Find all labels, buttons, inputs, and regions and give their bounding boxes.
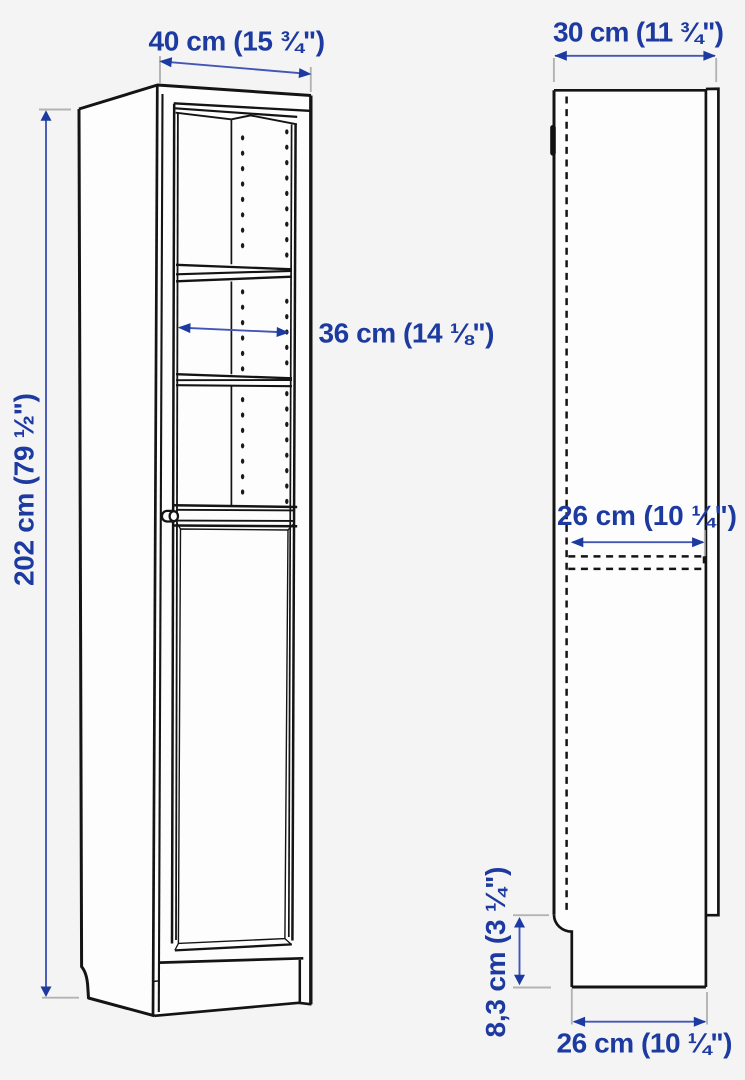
svg-text:36 cm (14 ⅛"): 36 cm (14 ⅛") <box>319 317 495 348</box>
svg-text:26 cm (10 ¼"): 26 cm (10 ¼") <box>557 1028 733 1059</box>
svg-text:202 cm (79 ½"): 202 cm (79 ½") <box>9 393 40 586</box>
svg-text:40 cm (15 ¾"): 40 cm (15 ¾") <box>149 25 325 56</box>
svg-text:26 cm (10 ¼"): 26 cm (10 ¼") <box>557 500 737 531</box>
svg-text:30 cm (11 ¾"): 30 cm (11 ¾") <box>553 17 724 48</box>
svg-text:8,3 cm (3 ¼"): 8,3 cm (3 ¼") <box>480 867 511 1038</box>
